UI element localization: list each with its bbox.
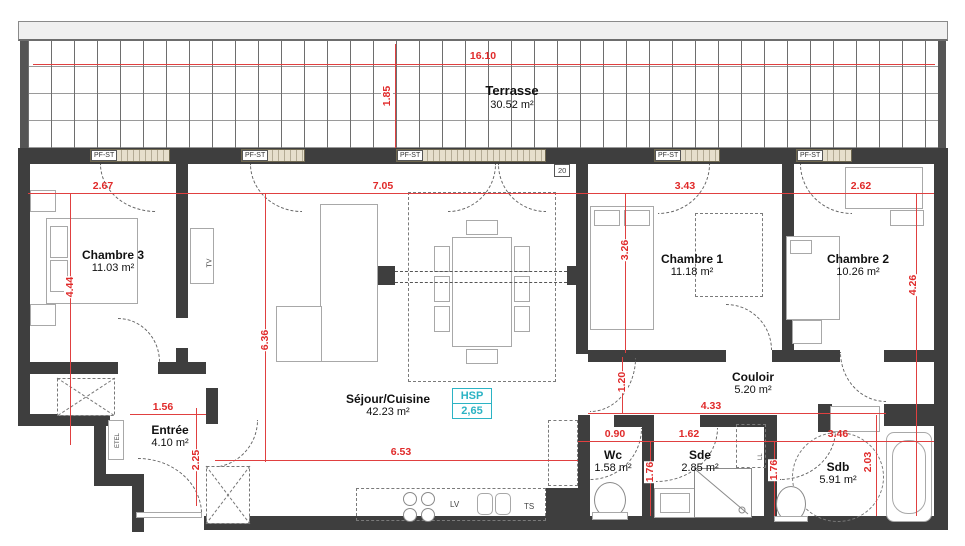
room-label-terrasse: Terrasse 30.52 m² [485,83,538,112]
door-arc [250,164,302,212]
etel-label: ETEL [115,434,121,448]
room-label-chambre3: Chambre 3 11.03 m² [82,248,144,276]
wall-chambre1-west [576,162,588,354]
window-label: PF-ST [397,150,423,161]
room-label-sejour: Séjour/Cuisine 42.23 m² [346,392,430,420]
vanity-basin [660,493,690,513]
dimension-label: 4.26 [907,274,919,296]
dimension-label: 3.43 [675,180,695,192]
room-label-wc: Wc 1.58 m² [594,448,631,476]
window-sill: PF-ST [654,149,720,162]
toilet-tank [592,512,628,520]
dimension-label: 6.36 [259,329,271,351]
wall-thickness-note: 20 [554,164,570,177]
dimension-label: 0.90 [605,428,625,440]
sink-bowl [477,493,493,515]
door-arc-chambre2 [840,352,886,402]
dimension-line [33,64,935,65]
dining-table [452,237,512,347]
dimension-label: 2.03 [862,451,874,473]
chair [434,306,450,332]
nightstand [30,304,56,326]
dimension-line [28,193,934,194]
window-label: PF-ST [242,150,268,161]
wall-right [934,148,948,530]
tv-label: TV [207,246,214,268]
dimension-line [395,44,396,148]
tv-unit: TV [190,228,214,284]
room-label-couloir: Couloir 5.20 m² [732,370,774,398]
dimension-label: 7.05 [373,180,393,192]
closet-x [206,466,250,524]
kitchen-corner-unit [546,488,584,522]
window-label: PF-ST [655,150,681,161]
dimension-label: 2.25 [190,449,202,471]
ceiling-height-note: HSP 2,65 [452,388,492,419]
washing-machine-dashed: LL [736,424,766,468]
window-sill: PF-ST [90,149,170,162]
door-arc-chambre1 [726,304,772,350]
hsp-label: HSP [453,389,491,403]
nightstand [792,320,822,344]
dimension-label: 1.85 [381,85,393,107]
cooktop-burner [403,492,417,506]
dimension-label: 1.62 [679,428,699,440]
dimension-label: 1.76 [768,459,780,481]
dimension-line [265,193,266,462]
room-label-sde: Sde 2.85 m² [681,448,718,476]
dimension-label: 4.44 [64,276,76,298]
window-label: PF-ST [91,150,117,161]
cooktop-burner [421,508,435,522]
wall-couloir-north-c [884,350,934,362]
pillow [790,240,812,254]
etel-cabinet: ETEL [108,420,124,460]
cooktop-burner [403,508,417,522]
chair [514,246,530,272]
washing-machine-label: LL [758,432,764,460]
bathtub-inner [892,440,926,514]
wall-entree-east [206,388,218,424]
pillow [50,226,68,258]
hsp-value: 2,65 [453,403,491,418]
room-label-entree: Entrée 4.10 m² [151,423,188,451]
dimension-label: 3.46 [828,428,848,440]
dimension-label: 2.67 [93,180,113,192]
desk-chair [890,210,924,226]
dimension-label: 1.76 [644,461,656,483]
door-arc-couloir [590,358,636,412]
door-arc-chambre3 [118,318,160,362]
beam-dashed-line [395,282,567,283]
wall-left [18,148,30,414]
wall-chambre3-south [28,362,118,374]
dimension-label: 16.10 [470,50,496,62]
dimension-label: 2.62 [851,180,871,192]
pillow [594,210,620,226]
toilet-base [774,516,808,522]
dimension-line [215,460,578,461]
chair [514,306,530,332]
dimension-label: 1.56 [153,401,173,413]
chair [466,220,498,235]
wall-chambre3-east [176,162,188,318]
column [567,266,584,285]
window-sill: PF-ST [396,149,546,162]
sofa [320,204,378,362]
dishwasher-label: LV [450,500,459,509]
dimension-line [70,193,71,445]
beam-dashed-line [395,271,567,272]
sdb-window-shutter [884,404,936,426]
closet-x [57,378,115,416]
dimension-line [578,441,934,442]
dimension-label: 3.26 [619,239,631,261]
wall-entree-north [158,362,206,374]
chair [434,276,450,302]
front-door-threshold [136,512,202,518]
dimension-line [916,193,917,516]
chair [434,246,450,272]
chair [514,276,530,302]
wall-couloir-north-b [772,350,840,362]
terrace-wall-left [20,41,28,148]
terrace-wall-right [938,41,946,148]
dimension-line [876,415,877,516]
window-sill: PF-ST [796,149,852,162]
dimension-label: 4.33 [701,400,721,412]
dimension-line [130,414,206,415]
room-label-chambre2: Chambre 2 10.26 m² [827,252,889,280]
room-label-chambre1: Chambre 1 11.18 m² [661,252,723,280]
sink-bowl [495,493,511,515]
balcony-railing [18,21,948,41]
dimension-line [625,193,626,353]
dimension-label: 6.53 [391,446,411,458]
room-label-sdb: Sdb 5.91 m² [819,460,856,488]
dimension-label: 1.20 [616,371,628,393]
window-sill: PF-ST [241,149,305,162]
chair [466,349,498,364]
window-label: PF-ST [797,150,823,161]
sofa-corner [276,306,322,362]
ts-label: TS [524,502,534,511]
dimension-line [588,413,886,414]
floor-plan: PF-ST PF-ST PF-ST PF-ST PF-ST TV [0,0,965,546]
cooktop-burner [421,492,435,506]
fridge-dashed [548,420,578,486]
pillow [624,210,650,226]
column [378,266,395,285]
